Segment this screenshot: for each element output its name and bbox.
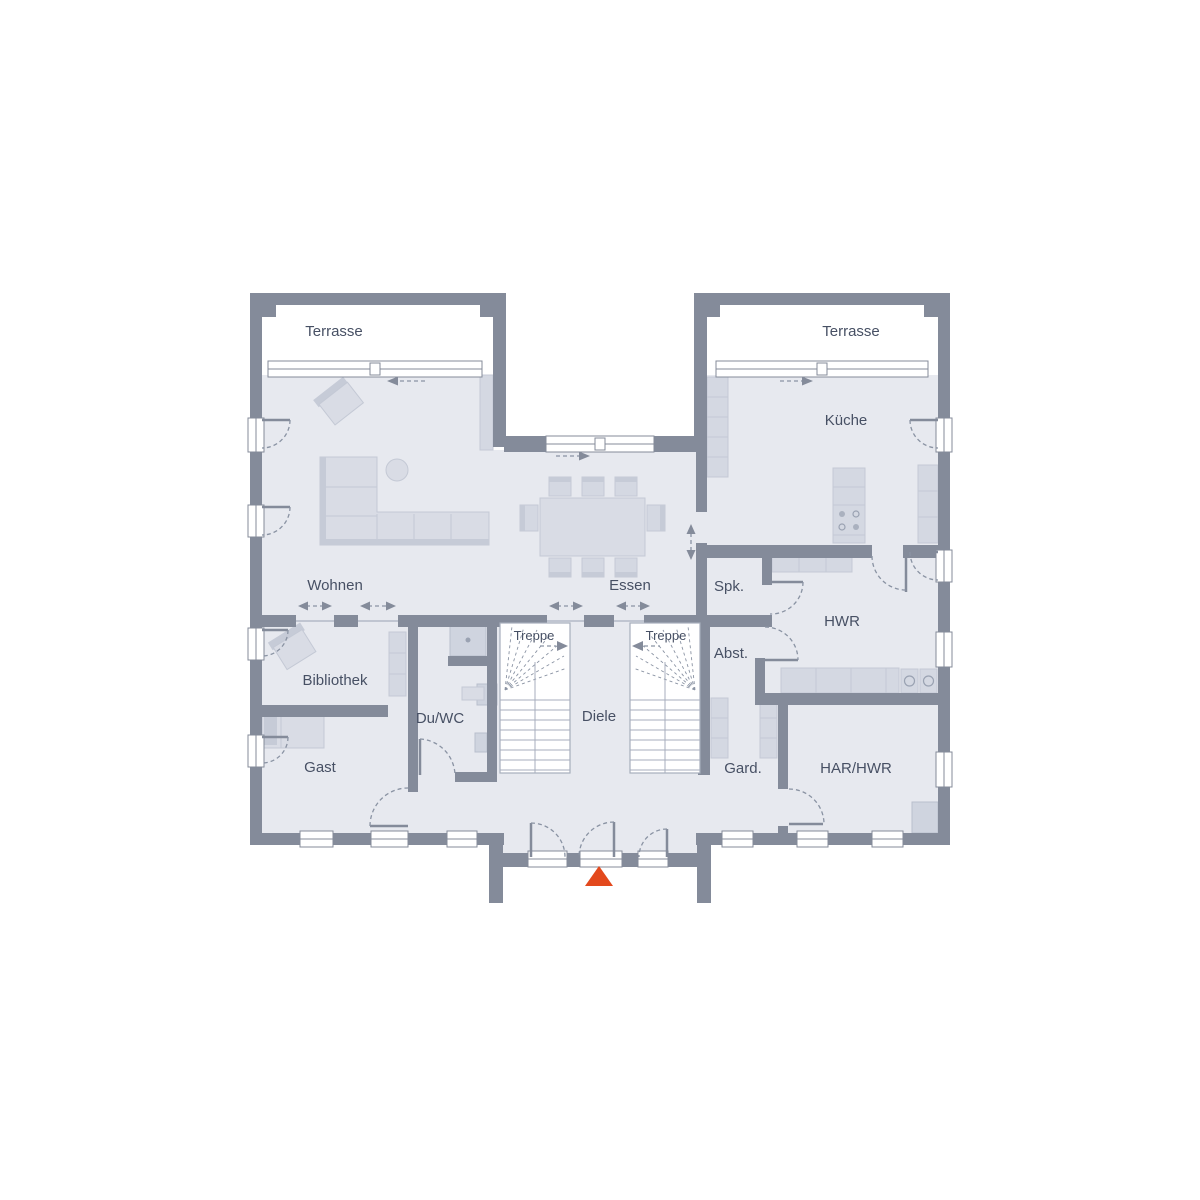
staircase-right (630, 623, 700, 773)
room-label-harhwr: HAR/HWR (820, 760, 892, 777)
pillow (264, 716, 277, 745)
boiler (912, 802, 938, 833)
side-table (386, 459, 408, 481)
room-label-wohnen: Wohnen (307, 577, 363, 594)
guest-room-furniture (262, 713, 324, 748)
floor-plan: Terrasse Terrasse Küche Wohnen Essen Spk… (0, 0, 1200, 1200)
room-label-terrasse-right: Terrasse (822, 323, 880, 340)
room-label-kueche: Küche (825, 412, 868, 429)
room-label-essen: Essen (609, 577, 651, 594)
staircase-left (500, 623, 570, 773)
room-label-duwc: Du/WC (416, 710, 465, 727)
hwr-counter (781, 668, 899, 693)
room-label-bibliothek: Bibliothek (302, 672, 368, 689)
dining-table (540, 498, 645, 556)
bookshelf (389, 632, 406, 696)
kitchen-counter (918, 465, 938, 543)
tall-cupboard (480, 375, 493, 450)
room-label-treppe-right: Treppe (646, 628, 687, 643)
terrace-pillar (924, 293, 950, 317)
floor-plan-drawing: Terrasse Terrasse Küche Wohnen Essen Spk… (0, 0, 1200, 1200)
room-label-terrasse-left: Terrasse (305, 323, 363, 340)
kitchen-cabinets (707, 377, 728, 477)
room-label-abst: Abst. (714, 645, 748, 662)
toilet (475, 733, 487, 752)
entrance-marker-icon (585, 866, 613, 886)
dryer (920, 669, 937, 693)
room-label-spk: Spk. (714, 578, 744, 595)
washbasin (462, 687, 484, 700)
terrace-pillar (250, 293, 276, 317)
wardrobe (711, 698, 728, 758)
terrace-pillar (480, 293, 506, 317)
terrace-pillar (694, 293, 720, 317)
room-label-gard: Gard. (724, 760, 762, 777)
room-label-treppe-left: Treppe (514, 628, 555, 643)
wardrobe (760, 698, 777, 758)
room-label-gast: Gast (304, 759, 337, 776)
room-label-hwr: HWR (824, 613, 860, 630)
washer (901, 669, 918, 693)
room-label-diele: Diele (582, 708, 616, 725)
